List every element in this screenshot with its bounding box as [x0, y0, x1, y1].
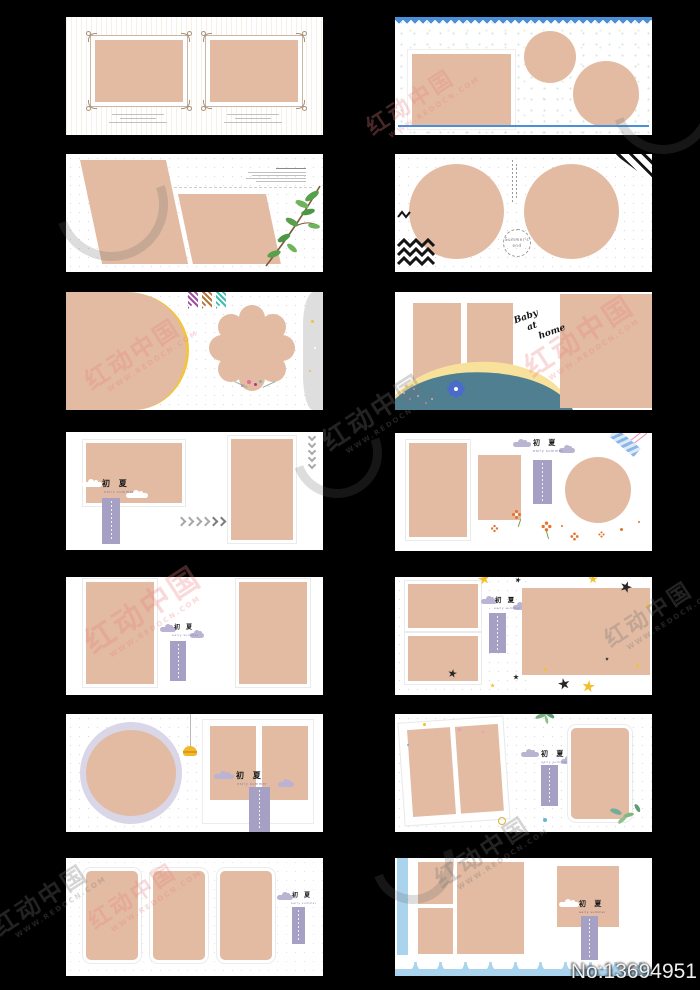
- album-spread-2: [395, 17, 652, 135]
- album-spread-4: Summer'send: [395, 154, 652, 272]
- cloud-icon: [214, 774, 234, 779]
- vertical-caption-line: [512, 160, 513, 202]
- photo-placeholder-circle: [573, 61, 639, 127]
- bunting-triangles-icon: [395, 19, 652, 24]
- blue-flower-icon: [447, 380, 465, 398]
- photo-placeholder-rounded: [150, 868, 208, 963]
- subtitle-early-summer: early summer: [237, 783, 267, 787]
- confetti-dot: [309, 370, 311, 372]
- photo-placeholder-circle: [86, 730, 176, 816]
- vertical-text-strip: [249, 787, 270, 832]
- confetti-dot: [311, 320, 314, 323]
- subtitle-early-summer: early summer: [541, 761, 568, 764]
- photo-placeholder: [236, 579, 310, 687]
- photo-placeholder: [457, 862, 524, 954]
- vertical-text-strip: [533, 460, 552, 504]
- album-spread-7: 初 夏 early summer: [66, 432, 323, 550]
- subtitle-early-summer: early summer: [579, 911, 606, 914]
- title-chuxia: 初 夏: [102, 480, 130, 488]
- title-chuxia: 初 夏: [292, 893, 312, 899]
- photo-placeholder: [210, 40, 298, 102]
- title-chuxia: 初 夏: [174, 625, 194, 631]
- bottom-rule: [398, 125, 649, 127]
- album-spread-9: 初 夏 early summer: [66, 577, 323, 695]
- album-spread-14: 初 夏 early summer: [395, 858, 652, 976]
- lamp-icon: [183, 746, 197, 756]
- cloud-icon: [521, 752, 539, 757]
- album-spread-6: Babyathome: [395, 292, 652, 410]
- photo-placeholder-circle: [524, 164, 619, 259]
- photo-placeholder: [560, 294, 652, 408]
- vertical-text-strip: [170, 641, 186, 681]
- confetti-dot: [314, 347, 316, 349]
- photo-placeholder-blob: [66, 292, 189, 410]
- album-spread-12: 初 夏 early summer: [395, 714, 652, 832]
- photo-placeholder-circle: [565, 457, 631, 523]
- vertical-text-strip: [581, 916, 598, 960]
- vertical-text-strip: [489, 613, 506, 653]
- photo-placeholder: [83, 579, 157, 687]
- cloud-icon: [559, 902, 579, 907]
- tilted-photo-card: [399, 716, 510, 825]
- zigzag-dash-icon: [397, 208, 413, 222]
- subtitle-early-summer: early summer: [291, 902, 316, 905]
- baby-at-home-text: Babyathome: [513, 301, 568, 348]
- album-spread-5: [66, 292, 323, 410]
- photo-placeholder: [522, 588, 650, 675]
- album-spread-10: 初 夏 early summer: [395, 577, 652, 695]
- photo-placeholder-rounded: [217, 868, 275, 963]
- album-spread-8: 初 夏 early summer: [395, 433, 652, 551]
- photo-placeholder-circle: [524, 31, 576, 83]
- template-preview-sheet: Summer'send: [0, 0, 700, 990]
- subtitle-early-summer: early summer: [533, 450, 563, 454]
- title-chuxia: 初 夏: [236, 772, 264, 780]
- photo-placeholder: [418, 862, 453, 904]
- subtitle-early-summer: early summer: [494, 607, 521, 610]
- gray-wave-band: [303, 292, 323, 410]
- album-spread-11: 初 夏 early summer: [66, 714, 323, 832]
- album-spread-13: 初 夏 early summer: [66, 858, 323, 976]
- dashed-rule: [174, 187, 312, 188]
- photo-placeholder: [478, 455, 521, 520]
- title-chuxia: 初 夏: [533, 440, 558, 447]
- subtitle-early-summer: early summer: [104, 491, 134, 495]
- title-chuxia: 初 夏: [495, 597, 516, 604]
- ornate-frame: [90, 35, 188, 107]
- photo-placeholder: [418, 908, 453, 954]
- photo-placeholder: [228, 436, 296, 543]
- cloud-icon: [277, 895, 293, 900]
- vertical-text-strip: [541, 765, 558, 806]
- photo-placeholder-rounded: [568, 725, 632, 822]
- pendant-cord: [190, 714, 191, 748]
- branch-leaves-icon: [262, 182, 322, 270]
- ornate-frame: [205, 35, 303, 107]
- photo-placeholder-rounded: [83, 868, 141, 963]
- vertical-caption-line: [516, 164, 517, 198]
- album-spread-1: [66, 17, 323, 135]
- photo-placeholder: [412, 54, 511, 125]
- photo-placeholder: [405, 633, 481, 684]
- title-chuxia: 初 夏: [579, 901, 604, 908]
- cloud-icon: [82, 482, 102, 487]
- cloud-icon: [513, 442, 531, 447]
- album-spread-3: [66, 154, 323, 272]
- zigzag-icon: [397, 238, 435, 268]
- title-chuxia: 初 夏: [541, 751, 566, 758]
- stamp-circle: Summer'send: [503, 229, 531, 257]
- photo-placeholder: [95, 40, 183, 102]
- vertical-text-strip: [102, 498, 120, 544]
- image-id-label: No:13694951: [571, 960, 697, 984]
- photo-placeholder: [406, 440, 470, 540]
- vertical-text-strip: [292, 907, 305, 944]
- cloud-icon: [278, 782, 294, 787]
- photo-placeholder: [405, 581, 481, 631]
- subtitle-early-summer: early summer: [172, 634, 199, 637]
